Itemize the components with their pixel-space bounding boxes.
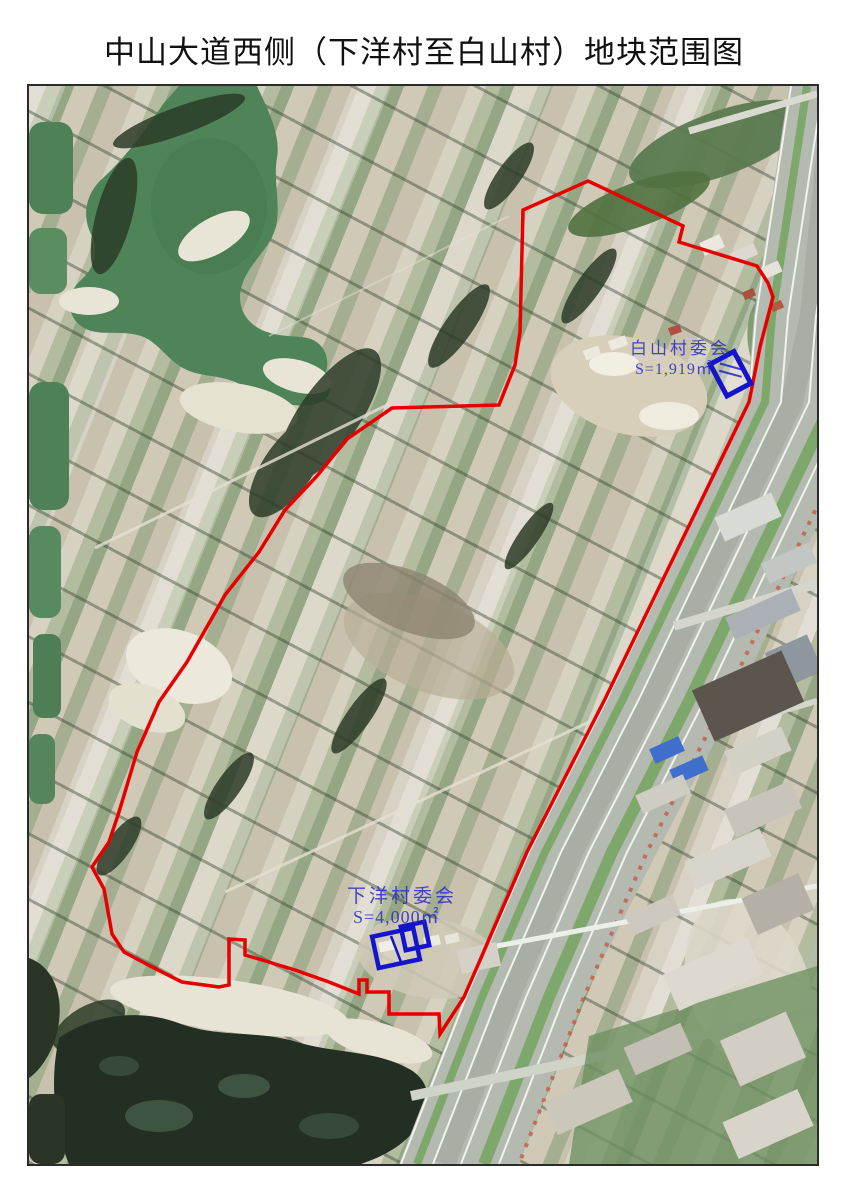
annotation-xiayang-area: S=4,000㎡ [353,906,440,927]
annotation-baishan-name: 白山村委会 [630,339,730,358]
annotation-baishan-area: S=1,919㎡ [635,360,713,378]
annotation-xiayang-name: 下洋村委会 [347,885,457,907]
satellite-imagery: 白山村委会 S=1,919㎡ 下洋村委会 S=4,000㎡ [29,86,817,1164]
page-title: 中山大道西侧（下洋村至白山村）地块范围图 [0,0,848,72]
parcel-marker-baishan [710,352,751,396]
map-frame: 白山村委会 S=1,919㎡ 下洋村委会 S=4,000㎡ [27,84,819,1166]
map-document: 中山大道西侧（下洋村至白山村）地块范围图 [0,0,848,1197]
